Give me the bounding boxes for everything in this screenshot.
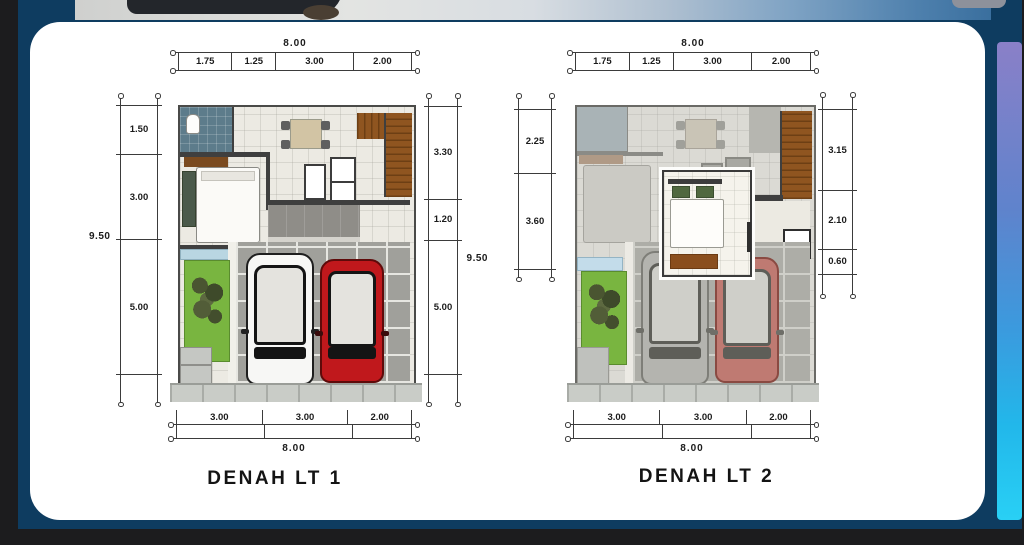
bed [196,167,260,243]
plan1-dim-top-segments: 1.751.253.002.00 [178,53,412,70]
utility-divider [181,364,211,366]
dim-line [569,70,817,71]
dimension-segment: 1.25 [630,53,674,70]
plan1-dim-bottom-total: 8.00 [170,441,418,457]
plan1-dim-bottom-labels: 3.003.002.00 [176,410,412,424]
dimension-segment: 3.00 [263,410,349,424]
dimension-segment [573,425,663,438]
bedroom-level2 [662,170,752,277]
dimension-segment [752,425,812,438]
plan1-dim-top-total: 8.00 [172,36,418,52]
plan1-dim-left: 1.503.005.00 9.50 [120,95,158,405]
dimension-value: 3.00 [694,412,713,423]
dimension-value: 2.25 [526,136,545,147]
dimension-segment: 3.60 [514,173,556,269]
dimension-segment: 1.50 [116,105,162,154]
plan1-dim-left-segments: 1.503.005.00 [116,105,162,375]
dimension-value: 2.00 [769,412,788,423]
dimension-value: 1.75 [196,56,215,67]
dimension-value: 3.00 [130,192,149,203]
plan2-dim-bottom-total: 8.00 [567,441,817,457]
dimension-value: 1.20 [434,214,453,225]
dimension-value: 1.25 [642,56,661,67]
car-roof-glass [723,269,771,346]
kitchen-stove [304,164,326,200]
car-roof-glass [254,265,306,345]
ghost-bed [583,165,651,243]
dim-line [172,70,418,71]
dimension-segment: 0.60 [818,249,857,274]
dimension-value: 3.60 [526,216,545,227]
car-mirror [315,331,323,336]
photo-banner [75,0,991,20]
dim-line [170,424,418,425]
dimension-value: 2.00 [772,56,791,67]
plan2-dim-left-segments: 2.253.60 [514,109,556,270]
bathroom [180,107,234,155]
dimension-value: 1.25 [245,56,264,67]
ghost-bathroom [577,107,628,152]
plan1-dim-right-segments: 3.301.205.00 [424,106,462,375]
dining-chair [281,121,290,130]
ghost-dining-chair [676,140,685,149]
dining-table [290,119,322,149]
dimension-value: 3.15 [828,145,847,156]
dim-line [569,52,817,53]
bed-pillow [696,186,714,198]
plan2-dim-top-total: 8.00 [569,36,817,52]
plan1-dim-bottom: 3.003.002.00 8.00 [170,410,418,457]
dimension-segment: 2.25 [514,109,556,173]
dimension-segment: 5.00 [116,239,162,374]
dimension-segment [663,425,752,438]
dimension-segment: 3.00 [116,154,162,240]
dimension-segment [265,425,353,438]
ghost-dining-chair [676,121,685,130]
plan2-dim-right-segments: 3.152.100.60 [818,109,857,275]
top-right-tab [952,0,1006,8]
shrubs [584,280,624,348]
car-rear-window [328,347,376,359]
dimension-value: 5.00 [434,302,453,313]
dimension-segment: 2.00 [354,53,412,70]
dim-line [172,52,418,53]
right-gradient-strip [997,42,1022,520]
plan2-dim-top-segments: 1.751.253.002.00 [575,53,811,70]
dimension-segment: 3.15 [818,109,857,190]
ghost-headboard-shelf [579,155,623,164]
car-mirror [710,330,718,335]
car-mirror [776,330,784,335]
car-roof-glass [328,271,376,347]
ghost-dining-table [685,119,717,149]
ghost-dining-chair [716,121,725,130]
page-background: 8.00 1.751.253.002.00 1.503.005.00 9.50 … [0,0,1024,545]
dining-chair [321,121,330,130]
dimension-segment [353,425,412,438]
stairs [780,111,812,199]
bed-pillow [672,186,690,198]
dining-chair [281,140,290,149]
plan1-sidewalk [170,383,422,402]
car-mirror [241,329,249,334]
dimension-segment: 1.75 [575,53,630,70]
car-rear-window [649,347,701,359]
plan1-dim-right-total: 9.50 [467,253,488,264]
door [747,222,751,252]
floor-plan-1 [178,105,416,389]
front-window [577,257,623,271]
plan1-dim-left-total: 9.50 [89,231,110,242]
car-mirror [636,328,644,333]
dimension-value: 3.00 [210,412,229,423]
plan2-dim-top: 8.00 1.751.253.002.00 [569,36,817,71]
dresser [670,254,718,269]
dimension-segment: 2.00 [752,53,811,70]
front-window [180,249,232,260]
kitchen-fridge-oven [330,157,356,205]
bed-duvet [670,199,724,248]
plan2-title: DENAH LT 2 [588,466,825,488]
dining-chair [321,140,330,149]
banner-car-wheel [303,5,339,20]
utility-box [180,347,212,385]
dimension-segment: 1.75 [178,53,232,70]
dimension-segment: 3.30 [424,106,462,199]
floor-plan-2 [575,105,816,389]
white-car [246,253,314,385]
dimension-segment: 5.00 [424,240,462,374]
dimension-segment: 2.00 [747,410,811,424]
bed-pillows [201,171,255,181]
dimension-value: 3.00 [296,412,315,423]
dim-line [170,438,418,439]
dimension-segment: 2.00 [348,410,412,424]
stairs-lower-flight [384,113,412,197]
bed-headboard-shelf [184,157,228,167]
plan1-dim-bottom-ticks [176,425,412,438]
dimension-value: 2.00 [373,56,392,67]
dim-line [567,438,817,439]
ghost-dining-chair [716,140,725,149]
dimension-segment: 1.20 [424,199,462,240]
dimension-segment: 3.00 [573,410,660,424]
toilet [186,114,200,134]
dimension-segment [176,425,265,438]
plan1-title: DENAH LT 1 [158,468,392,490]
plan2-sidewalk [567,383,819,402]
dimension-value: 2.00 [370,412,389,423]
dimension-value: 3.00 [703,56,722,67]
dimension-segment: 3.00 [176,410,263,424]
appliance-divider [332,181,354,183]
plan2-dim-bottom: 3.003.002.00 8.00 [567,410,817,457]
dimension-value: 3.30 [434,147,453,158]
bed-headboard [668,179,722,184]
plan2-dim-bottom-labels: 3.003.002.00 [573,410,811,424]
dimension-value: 0.60 [828,256,847,267]
plan2-dim-right: 3.152.100.60 [822,94,853,297]
dimension-value: 3.00 [607,412,626,423]
plan2-dim-bottom-ticks [573,425,811,438]
dimension-segment: 3.00 [276,53,354,70]
plan1-dim-top: 8.00 1.751.253.002.00 [172,36,418,71]
dimension-value: 1.75 [593,56,612,67]
dimension-value: 3.00 [305,56,324,67]
dimension-value: 5.00 [130,302,149,313]
content-card: 8.00 1.751.253.002.00 1.503.005.00 9.50 … [30,22,985,520]
dimension-value: 2.10 [828,215,847,226]
plan2-dim-left: 2.253.60 [518,95,552,280]
dimension-segment: 3.00 [660,410,746,424]
terrace [268,205,360,237]
dimension-segment: 3.00 [674,53,752,70]
utility-box [577,347,609,385]
car-mirror [381,331,389,336]
stairs-landing [749,107,781,153]
red-car [320,259,384,383]
dimension-value: 1.50 [130,124,149,135]
dimension-segment: 2.10 [818,190,857,248]
car-rear-window [723,347,771,359]
plan1-dim-right: 3.301.205.00 9.50 [428,95,458,405]
shrubs [187,273,227,343]
dim-line [567,424,817,425]
car-rear-window [254,347,306,359]
wardrobe [182,171,196,227]
dimension-segment: 1.25 [232,53,276,70]
